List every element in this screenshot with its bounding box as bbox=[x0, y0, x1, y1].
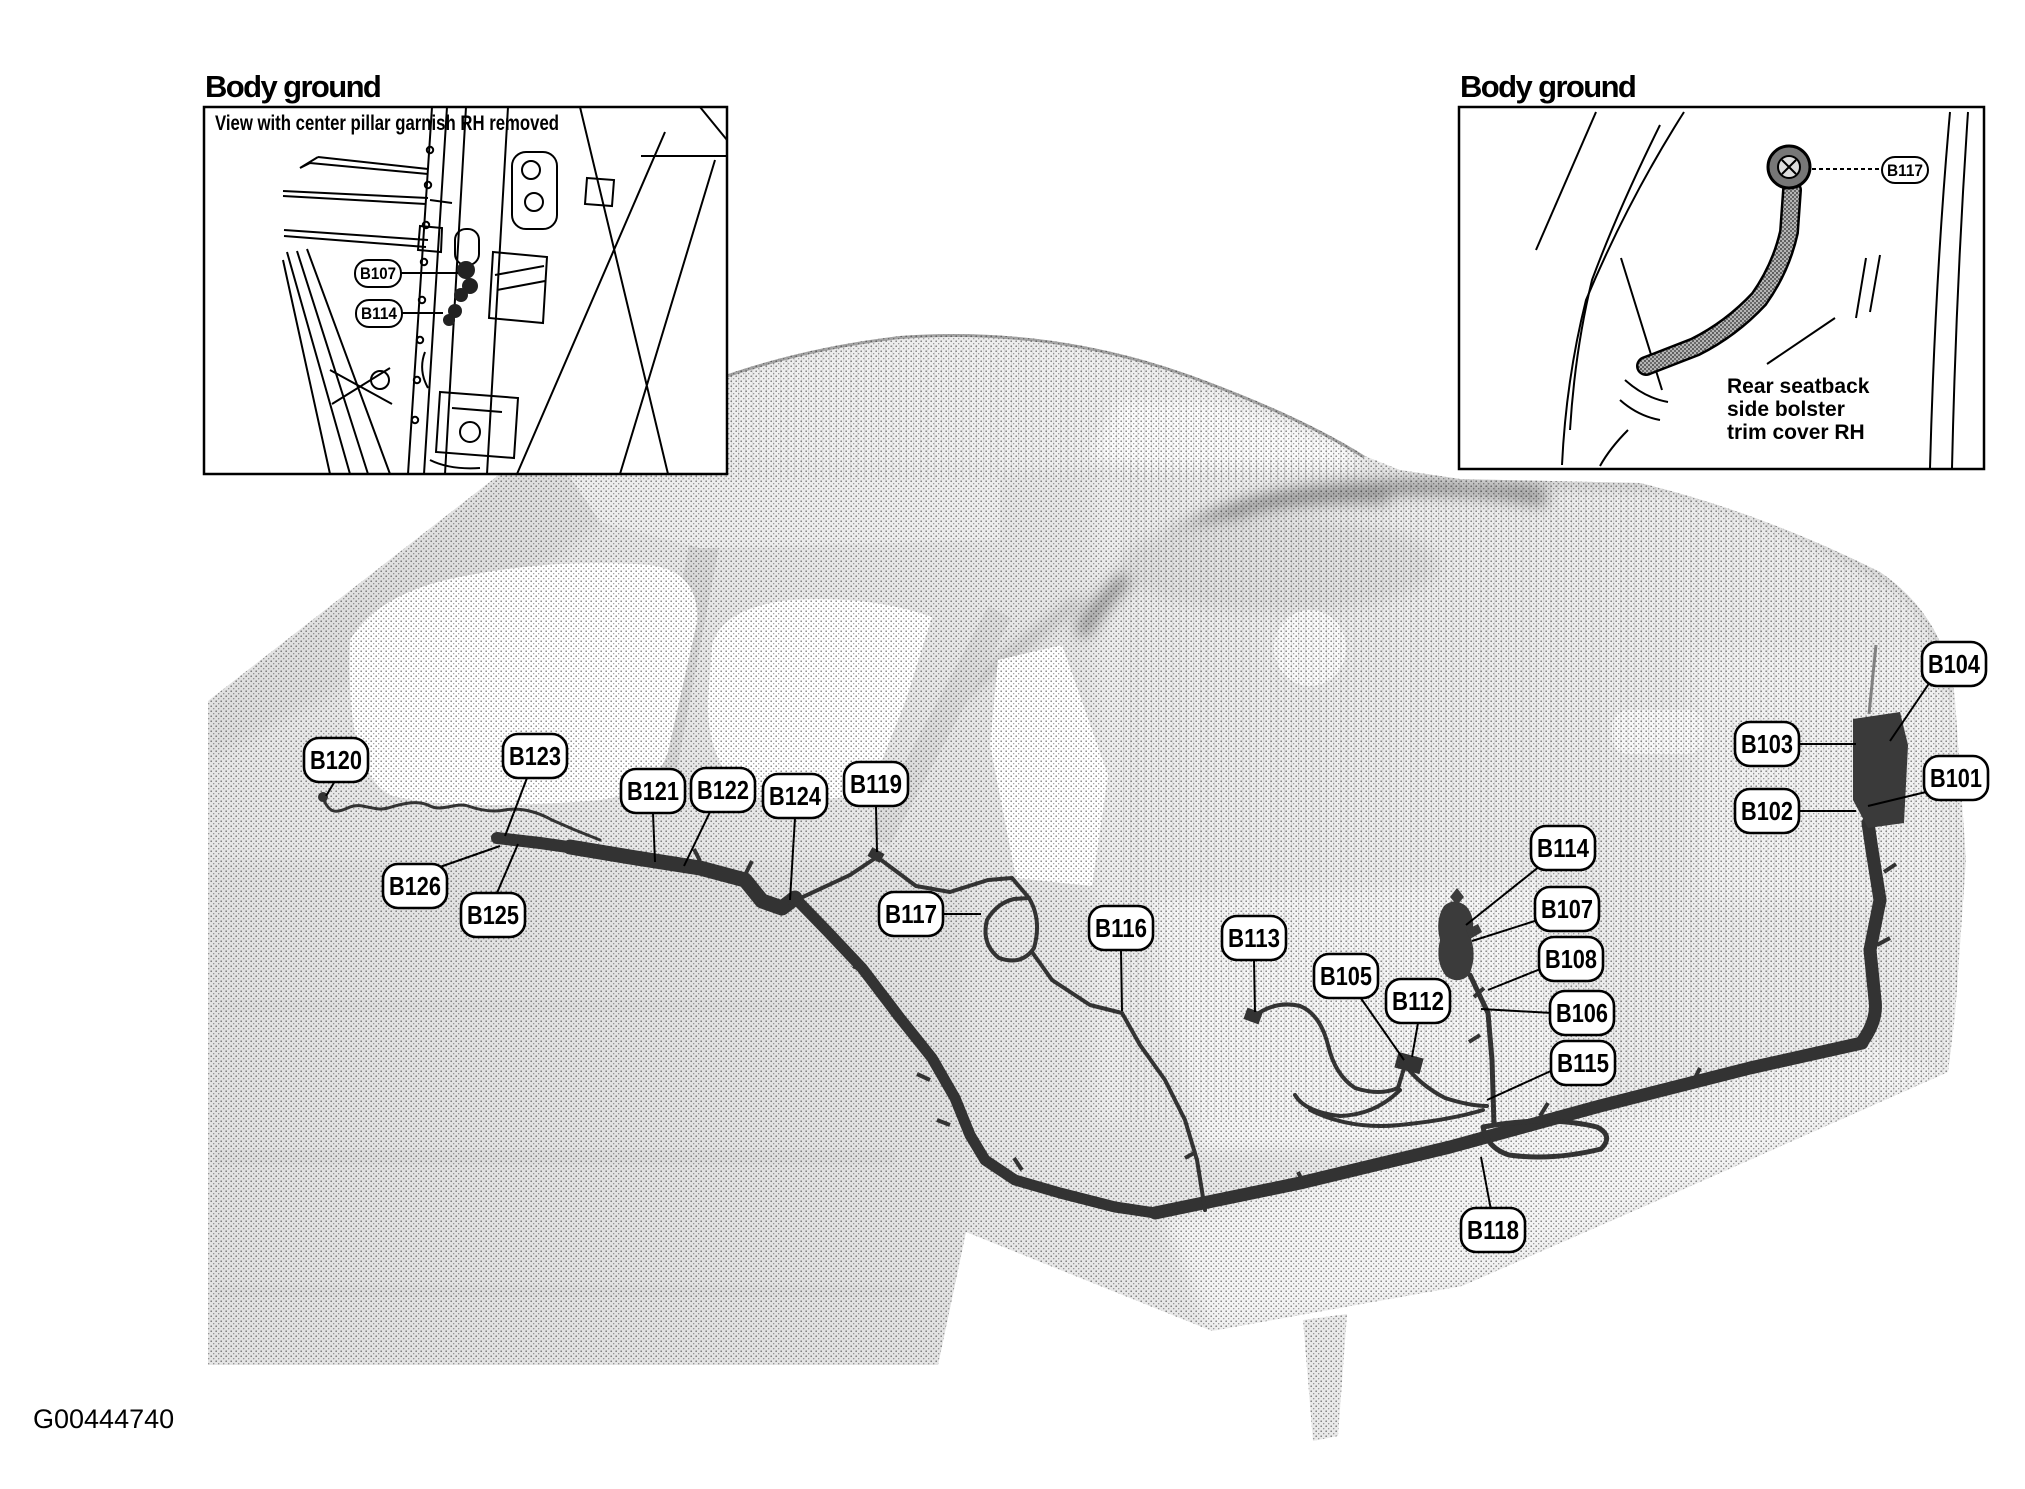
svg-text:View with center pillar garnis: View with center pillar garnish RH remov… bbox=[215, 112, 559, 135]
svg-text:B113: B113 bbox=[1228, 923, 1280, 953]
svg-text:B120: B120 bbox=[310, 745, 362, 775]
svg-text:B115: B115 bbox=[1557, 1048, 1609, 1078]
svg-text:B121: B121 bbox=[627, 776, 679, 806]
svg-text:B122: B122 bbox=[697, 775, 749, 805]
svg-text:B106: B106 bbox=[1556, 998, 1608, 1028]
svg-text:Body ground: Body ground bbox=[205, 69, 380, 104]
svg-text:B114: B114 bbox=[361, 304, 397, 323]
svg-text:B105: B105 bbox=[1320, 961, 1372, 991]
svg-text:B114: B114 bbox=[1537, 833, 1589, 863]
svg-text:B103: B103 bbox=[1741, 729, 1793, 759]
svg-text:B116: B116 bbox=[1095, 913, 1147, 943]
svg-text:B107: B107 bbox=[360, 264, 396, 283]
svg-text:B108: B108 bbox=[1545, 944, 1597, 974]
svg-text:B104: B104 bbox=[1928, 649, 1980, 679]
svg-text:B102: B102 bbox=[1741, 796, 1793, 826]
svg-text:B117: B117 bbox=[885, 899, 937, 929]
svg-text:B126: B126 bbox=[389, 871, 441, 901]
svg-text:G00444740: G00444740 bbox=[33, 1404, 174, 1434]
svg-text:B124: B124 bbox=[769, 781, 821, 811]
svg-text:B118: B118 bbox=[1467, 1215, 1519, 1245]
svg-text:side bolster: side bolster bbox=[1727, 398, 1845, 421]
svg-text:Rear seatback: Rear seatback bbox=[1727, 375, 1870, 398]
svg-text:B117: B117 bbox=[1887, 161, 1923, 180]
svg-text:B123: B123 bbox=[509, 741, 561, 771]
svg-text:Body ground: Body ground bbox=[1460, 69, 1635, 104]
svg-text:B119: B119 bbox=[850, 769, 902, 799]
svg-text:B112: B112 bbox=[1392, 986, 1444, 1016]
svg-text:B101: B101 bbox=[1930, 763, 1982, 793]
svg-text:trim cover RH: trim cover RH bbox=[1727, 421, 1865, 444]
svg-text:B125: B125 bbox=[467, 900, 519, 930]
svg-text:B107: B107 bbox=[1541, 894, 1593, 924]
